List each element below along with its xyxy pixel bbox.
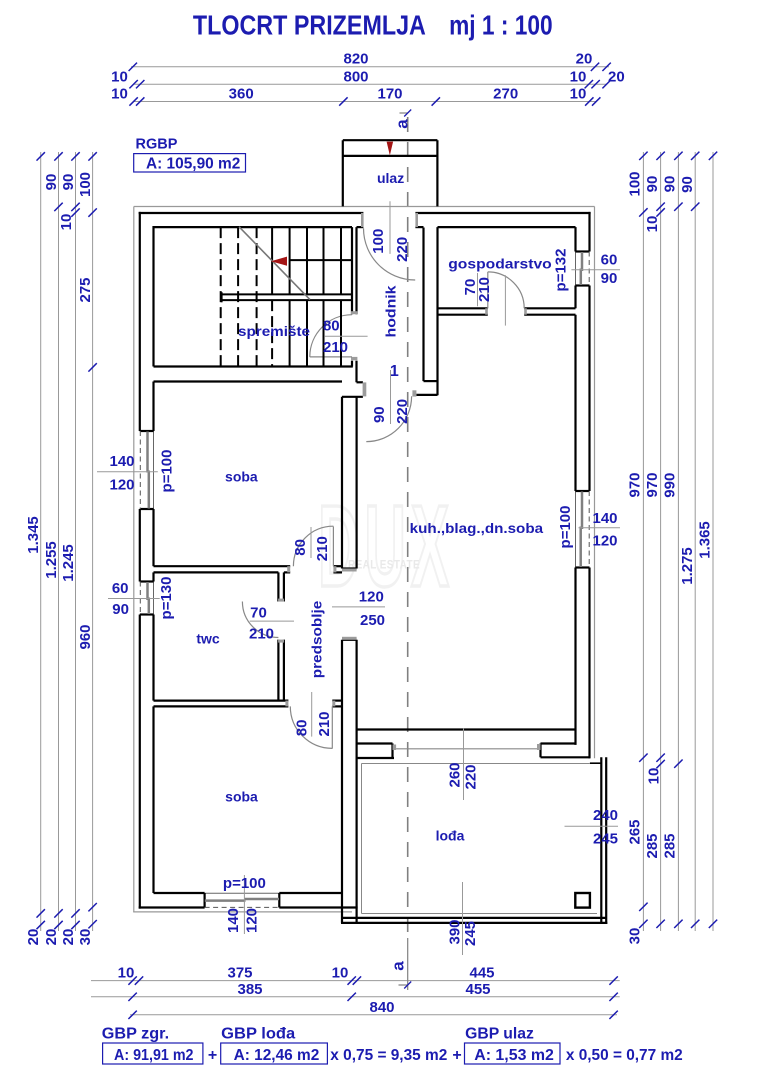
svg-text:90: 90 [371, 406, 388, 423]
svg-text:100: 100 [370, 229, 387, 254]
svg-text:260: 260 [447, 762, 464, 787]
svg-text:120: 120 [359, 589, 384, 606]
svg-text:990: 990 [662, 473, 679, 498]
svg-text:20: 20 [60, 929, 77, 946]
svg-text:90: 90 [662, 176, 679, 193]
svg-text:1.245: 1.245 [60, 544, 77, 582]
svg-text:70: 70 [250, 604, 267, 621]
svg-text:960: 960 [77, 624, 94, 649]
svg-text:1.365: 1.365 [697, 521, 714, 559]
svg-text:120: 120 [592, 533, 617, 550]
svg-text:20: 20 [608, 68, 625, 85]
svg-text:mj 1 : 100: mj 1 : 100 [449, 9, 552, 40]
svg-text:375: 375 [227, 965, 252, 982]
svg-text:soba: soba [225, 468, 258, 484]
svg-text:REAL ESTATE: REAL ESTATE [348, 560, 420, 572]
svg-text:TLOCRT PRIZEMLJA: TLOCRT PRIZEMLJA [193, 9, 426, 40]
svg-text:210: 210 [476, 277, 493, 302]
svg-text:x 0,75 = 9,35 m2: x 0,75 = 9,35 m2 [330, 1047, 447, 1064]
svg-text:60: 60 [112, 580, 129, 597]
svg-text:+: + [208, 1047, 217, 1064]
svg-text:a: a [389, 961, 408, 971]
svg-text:1.255: 1.255 [43, 541, 60, 579]
svg-text:220: 220 [394, 399, 411, 424]
svg-text:90: 90 [601, 270, 618, 287]
svg-text:20: 20 [43, 929, 60, 946]
svg-text:390: 390 [447, 919, 464, 944]
svg-text:210: 210 [249, 626, 274, 643]
svg-text:240: 240 [593, 807, 618, 824]
svg-text:140: 140 [225, 908, 242, 933]
svg-text:120: 120 [244, 908, 261, 933]
svg-text:210: 210 [323, 339, 348, 356]
svg-text:hodnik: hodnik [383, 285, 399, 337]
svg-text:90: 90 [43, 174, 60, 191]
svg-text:p=100: p=100 [223, 875, 266, 892]
svg-text:80: 80 [323, 317, 340, 334]
svg-text:210: 210 [316, 711, 333, 736]
svg-text:100: 100 [626, 171, 643, 196]
svg-text:twc: twc [196, 630, 220, 646]
svg-text:A: 12,46 m2: A: 12,46 m2 [234, 1047, 320, 1064]
svg-text:+: + [452, 1047, 461, 1064]
svg-text:140: 140 [109, 453, 134, 470]
svg-text:245: 245 [462, 921, 479, 946]
svg-text:800: 800 [343, 68, 368, 85]
svg-text:p=100: p=100 [158, 450, 175, 493]
svg-text:840: 840 [369, 999, 394, 1016]
svg-text:90: 90 [112, 601, 129, 618]
svg-text:970: 970 [644, 472, 661, 497]
svg-text:A: 1,53 m2: A: 1,53 m2 [474, 1047, 554, 1064]
svg-text:10: 10 [118, 965, 135, 982]
svg-text:1: 1 [390, 363, 399, 380]
svg-text:spremište: spremište [238, 323, 310, 339]
svg-text:445: 445 [469, 965, 494, 982]
svg-text:soba: soba [225, 789, 258, 805]
svg-text:30: 30 [626, 928, 643, 945]
svg-text:10: 10 [644, 216, 661, 233]
svg-text:p=100: p=100 [557, 506, 574, 549]
svg-text:170: 170 [377, 86, 402, 103]
svg-text:970: 970 [626, 472, 643, 497]
svg-text:90: 90 [60, 174, 77, 191]
svg-text:265: 265 [626, 819, 643, 844]
svg-text:30: 30 [77, 929, 94, 946]
svg-text:a: a [393, 119, 412, 129]
svg-text:455: 455 [465, 981, 490, 998]
svg-text:220: 220 [394, 237, 411, 262]
svg-text:GBP lođa: GBP lođa [221, 1026, 295, 1043]
svg-text:1.275: 1.275 [679, 547, 696, 585]
svg-text:140: 140 [592, 510, 617, 527]
svg-text:lođa: lođa [436, 828, 465, 844]
svg-text:20: 20 [25, 929, 42, 946]
svg-text:80: 80 [294, 720, 311, 737]
svg-text:GBP ulaz: GBP ulaz [465, 1026, 534, 1043]
svg-text:385: 385 [237, 981, 262, 998]
svg-text:1.345: 1.345 [25, 516, 42, 554]
svg-text:90: 90 [644, 176, 661, 193]
svg-text:10: 10 [111, 68, 128, 85]
svg-text:100: 100 [77, 172, 94, 197]
svg-text:285: 285 [644, 833, 661, 858]
svg-text:10: 10 [111, 86, 128, 103]
svg-text:10: 10 [332, 965, 349, 982]
svg-text:GBP zgr.: GBP zgr. [102, 1026, 169, 1043]
svg-text:80: 80 [292, 539, 309, 556]
svg-text:RGBP: RGBP [136, 137, 178, 153]
svg-text:275: 275 [77, 277, 94, 302]
svg-text:ulaz: ulaz [377, 170, 404, 186]
svg-text:210: 210 [314, 536, 331, 561]
svg-text:x 0,50 = 0,77 m2: x 0,50 = 0,77 m2 [566, 1047, 683, 1064]
svg-text:60: 60 [601, 252, 618, 269]
svg-text:90: 90 [679, 176, 696, 193]
svg-text:20: 20 [576, 51, 593, 68]
svg-text:p=130: p=130 [158, 577, 175, 620]
svg-text:p=132: p=132 [553, 249, 570, 292]
svg-text:245: 245 [593, 831, 618, 848]
svg-text:270: 270 [493, 86, 518, 103]
svg-text:10: 10 [570, 68, 587, 85]
svg-text:kuh.,blag.,dn.soba: kuh.,blag.,dn.soba [410, 520, 544, 536]
svg-text:250: 250 [360, 612, 385, 629]
svg-text:220: 220 [463, 764, 480, 789]
svg-text:predsoblje: predsoblje [309, 600, 325, 678]
svg-text:820: 820 [343, 51, 368, 68]
svg-text:A: 91,91 m2: A: 91,91 m2 [114, 1047, 194, 1064]
svg-text:10: 10 [58, 214, 75, 231]
svg-text:DUX: DUX [318, 482, 454, 611]
svg-text:120: 120 [109, 477, 134, 494]
svg-text:A: 105,90 m2: A: 105,90 m2 [146, 156, 240, 173]
svg-text:360: 360 [229, 86, 254, 103]
svg-text:10: 10 [646, 768, 663, 785]
svg-text:285: 285 [662, 833, 679, 858]
svg-text:10: 10 [570, 86, 587, 103]
svg-text:gospodarstvo: gospodarstvo [448, 256, 552, 272]
